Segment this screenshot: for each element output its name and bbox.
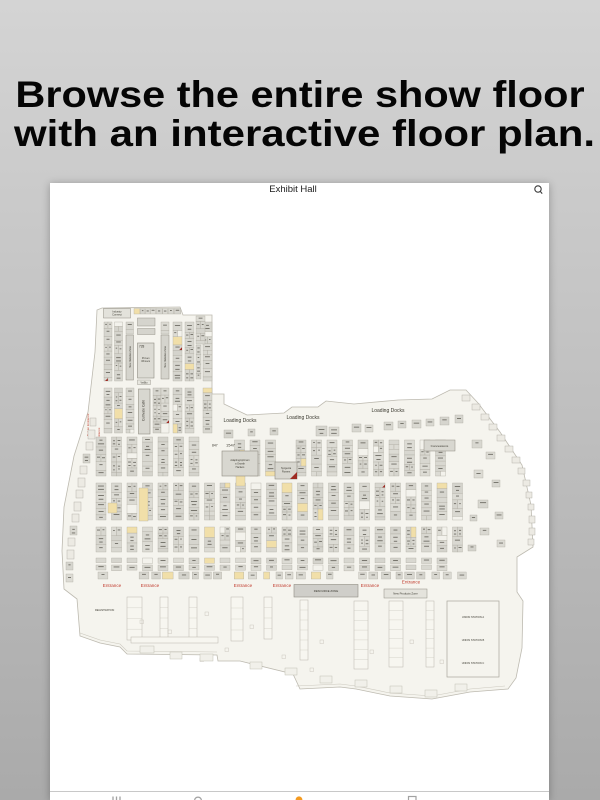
- svg-text:Cultivate Café: Cultivate Café: [142, 400, 146, 421]
- svg-text:Flowers: Flowers: [282, 470, 291, 473]
- svg-text:Concessions: Concessions: [431, 444, 449, 448]
- svg-text:UNION STATION C: UNION STATION C: [462, 661, 485, 665]
- svg-text:New Varieties Zone: New Varieties Zone: [164, 345, 167, 367]
- svg-text:New Products Zone: New Products Zone: [393, 592, 418, 596]
- svg-text:Loading Docks: Loading Docks: [223, 418, 257, 424]
- svg-text:Hackers: Hackers: [236, 466, 246, 469]
- svg-text:847: 847: [212, 444, 218, 448]
- svg-text:Winners: Winners: [141, 360, 151, 363]
- svg-text:Entrance: Entrance: [234, 583, 253, 588]
- svg-text:VetBio: VetBio: [141, 382, 149, 385]
- svg-text:Connect: Connect: [112, 313, 122, 317]
- svg-text:REGISTRATION: REGISTRATION: [95, 608, 114, 612]
- svg-text:Loading Docks: Loading Docks: [286, 415, 320, 421]
- svg-text:RESOURCE ZONE: RESOURCE ZONE: [314, 589, 339, 593]
- svg-text:Entrance: Entrance: [103, 583, 122, 588]
- svg-text:Entrance: Entrance: [141, 583, 160, 588]
- svg-text:Entrance: Entrance: [273, 583, 292, 588]
- svg-text:Loading Docks: Loading Docks: [371, 408, 405, 414]
- svg-text:New Varieties Zone: New Varieties Zone: [129, 345, 132, 367]
- svg-text:1547: 1547: [226, 443, 236, 448]
- svg-text:728: 728: [139, 345, 145, 349]
- svg-text:Entrance: Entrance: [402, 580, 421, 585]
- svg-text:Entrance: Entrance: [361, 583, 380, 588]
- svg-text:UNION STATION A: UNION STATION A: [462, 615, 485, 619]
- svg-text:UNION STATION B: UNION STATION B: [462, 638, 485, 642]
